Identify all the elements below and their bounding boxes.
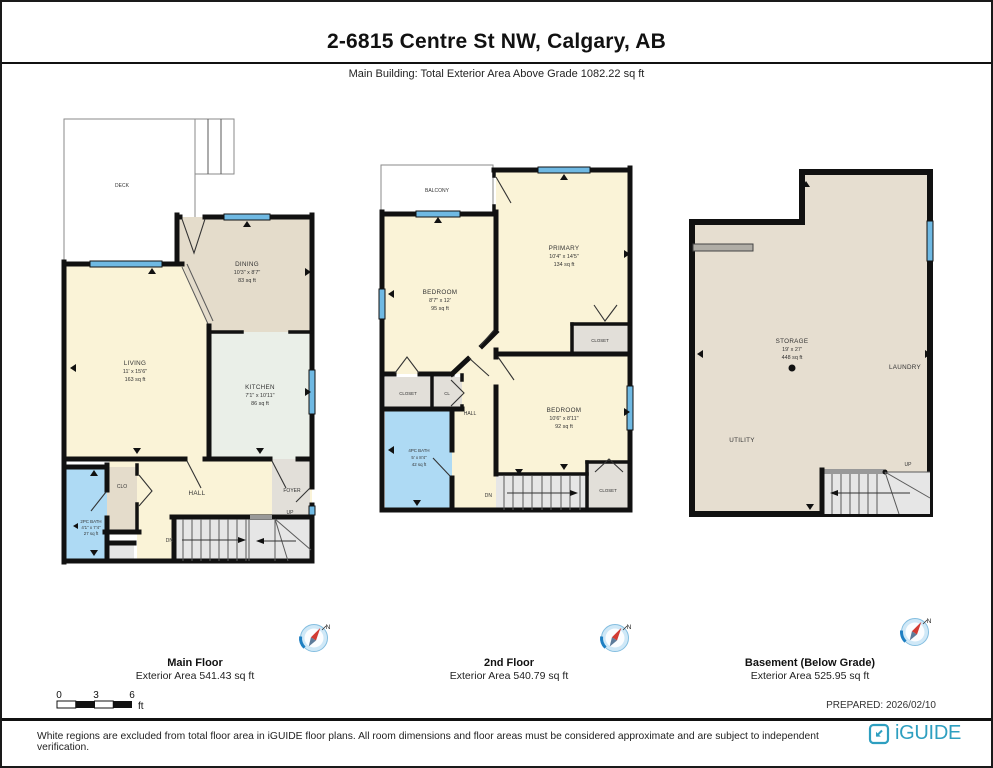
window (309, 506, 315, 515)
caption-basement-area: Exterior Area 525.95 sq ft (751, 670, 869, 682)
room-label-2pc-bath: 2PC BATH (80, 519, 101, 524)
iguide-brand: iGUIDE (868, 722, 961, 745)
floorplan-page: 2-6815 Centre St NW, Calgary, AB Main Bu… (0, 0, 993, 768)
window (379, 289, 385, 319)
room-clo (107, 467, 137, 532)
caption-basement-floor: Basement (Below Grade) (745, 657, 875, 669)
window (927, 221, 933, 261)
room-label-bedroom2: BEDROOM (547, 407, 582, 414)
room-label-bedroom1: BEDROOM (423, 289, 458, 296)
room-dims-living: 11' x 15'6" (123, 369, 147, 375)
room-foyer (272, 459, 310, 515)
page-title: 2-6815 Centre St NW, Calgary, AB (2, 30, 991, 54)
window (538, 167, 590, 173)
window (416, 211, 460, 217)
room-label-closet2: CLOSET (591, 338, 609, 343)
compass-n-label: N (927, 618, 932, 625)
room-dims-dining: 10'3" x 8'7" (234, 270, 261, 276)
room-area-kitchen: 86 sq ft (251, 401, 269, 407)
caption-main-area: Exterior Area 541.43 sq ft (136, 670, 254, 682)
room-area-bedroom1: 95 sq ft (431, 306, 449, 312)
room-label-laundry: LAUNDRY (889, 364, 922, 371)
compass-icon: N (896, 613, 934, 651)
prepared-date: PREPARED: 2026/02/10 (826, 700, 936, 711)
room-dims-2pc-bath: 4'1" x 7'4" (81, 525, 101, 530)
caption-second-area: Exterior Area 540.79 sq ft (450, 670, 568, 682)
room-dims-bedroom1: 8'7" x 12' (429, 298, 451, 304)
room-dims-primary: 10'4" x 14'5" (549, 254, 579, 260)
room-label-cl: CL (444, 391, 450, 396)
caption-main-floor: Main Floor (167, 657, 223, 669)
scale-3: 3 (93, 690, 99, 701)
room-label-deck: DECK (115, 183, 130, 189)
window (627, 386, 633, 430)
room-area-2pc-bath: 27 sq ft (84, 531, 99, 536)
floorplan-second: BALCONY BEDROOM 8'7" x 12' 95 sq ft PRIM… (372, 157, 642, 517)
iguide-logo-icon (868, 723, 890, 745)
iguide-logo-text: iGUIDE (895, 722, 961, 745)
compass-icon: N (596, 619, 634, 657)
room-area-living: 163 sq ft (125, 377, 146, 383)
compass-n-label: N (627, 624, 632, 631)
scale-0: 0 (56, 690, 62, 701)
room-label-closet1: CLOSET (399, 391, 417, 396)
room-bedroom2 (496, 354, 630, 474)
room-label-clo: CLO (117, 484, 127, 490)
room-storage-utility (692, 172, 930, 514)
room-2pc-bath (66, 467, 107, 561)
footer-disclaimer: White regions are excluded from total fl… (37, 731, 847, 753)
window (90, 261, 162, 267)
room-area-primary: 134 sq ft (554, 262, 575, 268)
room-label-dining: DINING (235, 261, 259, 268)
room-label-4pc-bath: 4PC BATH (408, 448, 429, 453)
footer-rule (2, 718, 991, 721)
floorplan-basement: STORAGE 19' x 27' 448 sq ft UTILITY LAUN… (682, 162, 942, 527)
room-area-storage: 448 sq ft (782, 355, 803, 361)
room-label-hall2: HALL (464, 411, 477, 417)
scale-unit: ft (138, 701, 144, 712)
room-dims-4pc-bath: 5' x 8'4" (411, 455, 427, 460)
deck-stairs (195, 119, 234, 174)
room-label-balcony: BALCONY (425, 188, 450, 194)
window (224, 214, 270, 220)
room-label-closet3: CLOSET (599, 488, 617, 493)
room-dims-kitchen: 7'1" x 10'11" (245, 393, 274, 399)
stairs-up-label: UP (905, 462, 913, 468)
stairs-dn-label: DN (166, 538, 174, 544)
room-area-bedroom2: 92 sq ft (555, 424, 573, 430)
beam (693, 244, 753, 251)
room-label-living: LIVING (124, 360, 146, 367)
camera-point (789, 365, 796, 372)
scale-bar: 0 3 6 ft (47, 686, 157, 716)
stairs-up-label: UP (287, 510, 295, 516)
scale-6: 6 (129, 690, 135, 701)
stairs-dn-label: DN (485, 493, 493, 499)
room-label-foyer: FOYER (283, 488, 301, 494)
compass-n-label: N (326, 624, 331, 631)
room-label-primary: PRIMARY (549, 245, 580, 252)
room-label-storage: STORAGE (776, 338, 809, 345)
room-dims-storage: 19' x 27' (782, 347, 802, 353)
room-area-dining: 83 sq ft (238, 278, 256, 284)
page-subtitle: Main Building: Total Exterior Area Above… (2, 68, 991, 80)
room-closet3 (587, 462, 629, 508)
header-rule (2, 62, 991, 64)
caption-second-floor: 2nd Floor (484, 657, 534, 669)
room-label-utility: UTILITY (729, 437, 755, 444)
room-label-kitchen: KITCHEN (245, 384, 275, 391)
room-label-hall: HALL (189, 490, 206, 497)
compass-icon: N (295, 619, 333, 657)
room-dims-bedroom2: 10'6" x 8'11" (549, 416, 578, 422)
room-area-4pc-bath: 42 sq ft (412, 462, 427, 467)
floorplan-main: DECK DINING 10'3" x 8'7" 83 sq ft LIVING… (57, 107, 322, 572)
